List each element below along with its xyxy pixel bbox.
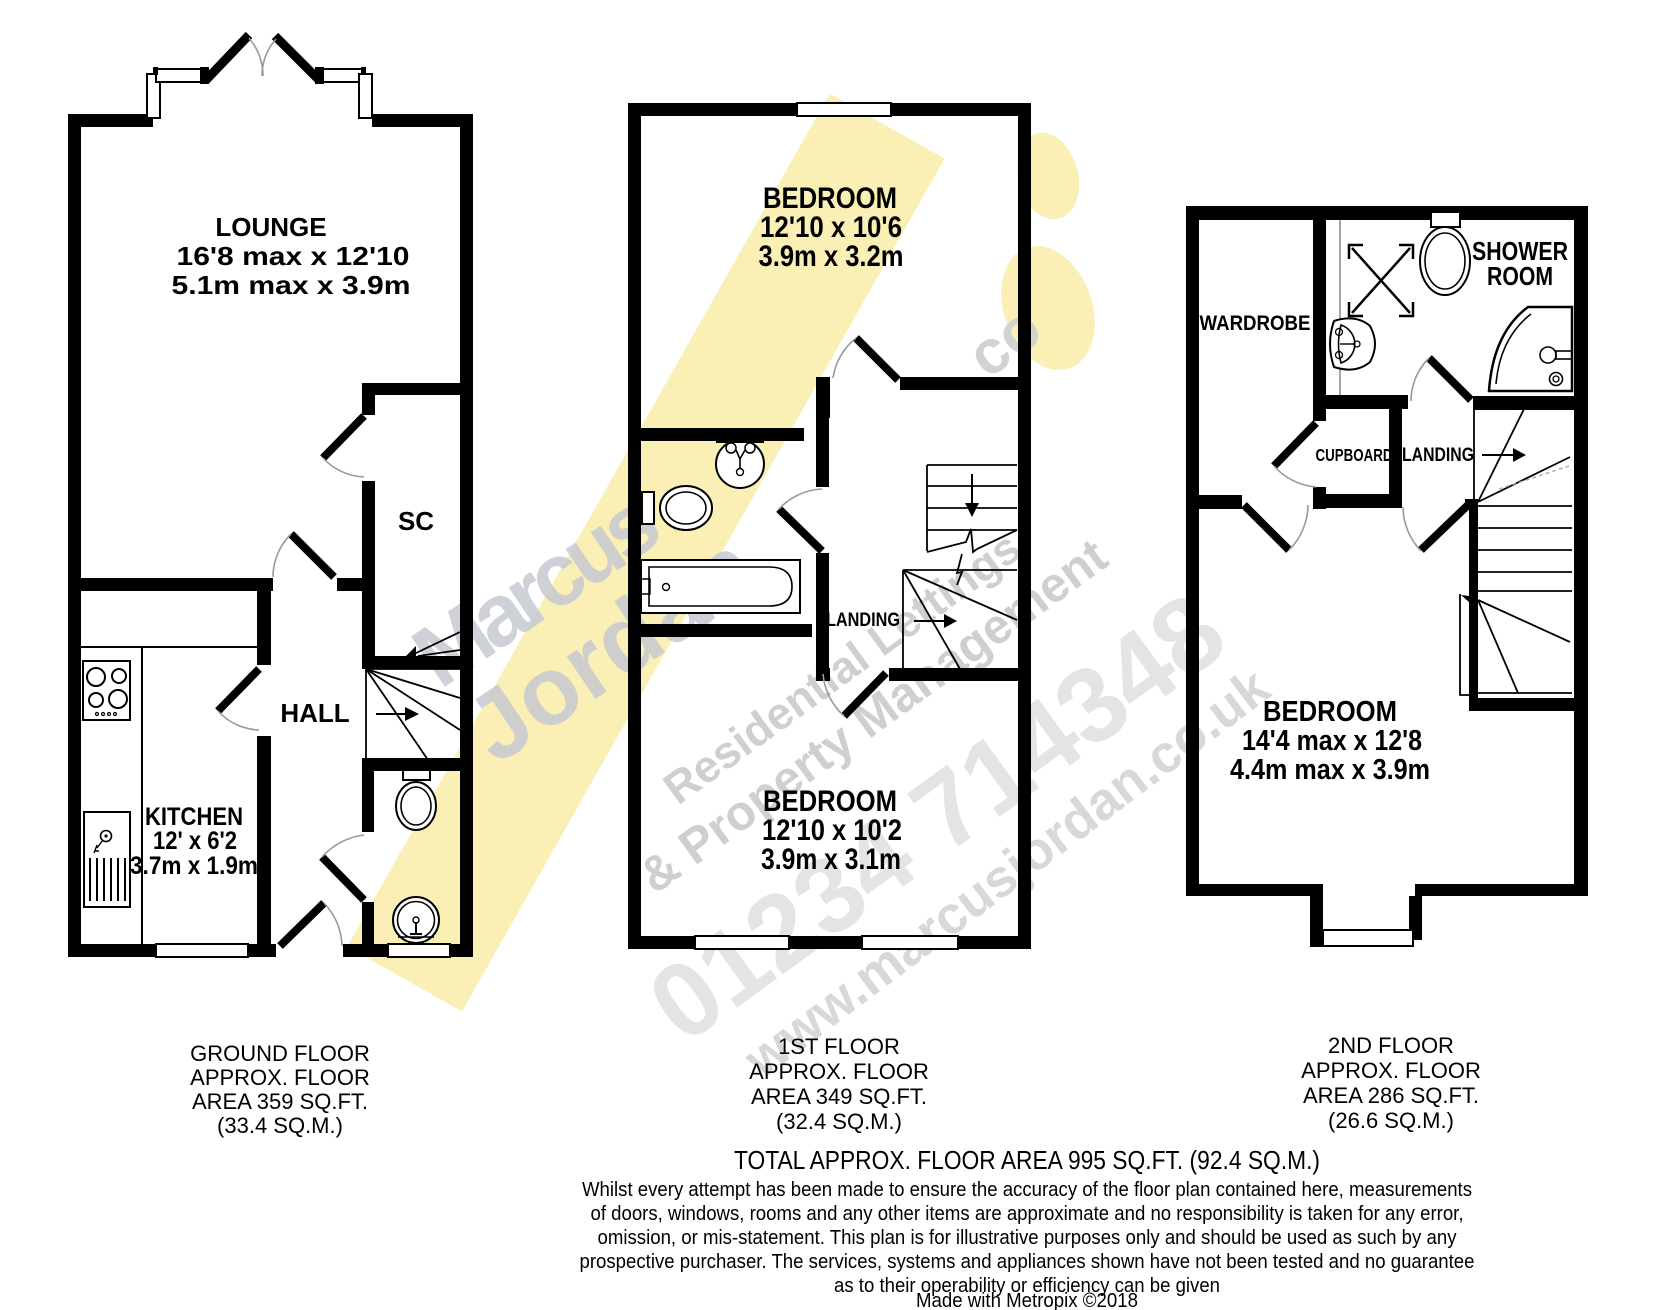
svg-text:APPROX. FLOOR: APPROX. FLOOR <box>749 1059 929 1084</box>
svg-text:AREA 286 SQ.FT.: AREA 286 SQ.FT. <box>1303 1083 1479 1108</box>
svg-text:HALL: HALL <box>280 698 349 728</box>
svg-text:16'8 max x 12'10: 16'8 max x 12'10 <box>177 241 410 271</box>
svg-text:(26.6 SQ.M.): (26.6 SQ.M.) <box>1328 1108 1454 1133</box>
svg-text:BEDROOM: BEDROOM <box>1263 696 1397 728</box>
svg-text:Made with Metropix ©2018: Made with Metropix ©2018 <box>916 1290 1138 1310</box>
svg-text:WARDROBE: WARDROBE <box>1200 312 1311 335</box>
svg-text:AREA 349 SQ.FT.: AREA 349 SQ.FT. <box>751 1084 927 1109</box>
svg-text:12' x 6'2: 12' x 6'2 <box>153 827 237 855</box>
svg-text:APPROX. FLOOR: APPROX. FLOOR <box>1301 1058 1481 1083</box>
svg-text:LANDING: LANDING <box>1402 445 1474 466</box>
svg-text:(32.4 SQ.M.): (32.4 SQ.M.) <box>776 1109 902 1134</box>
svg-text:3.9m x 3.1m: 3.9m x 3.1m <box>761 843 901 876</box>
svg-text:4.4m max x 3.9m: 4.4m max x 3.9m <box>1230 754 1430 786</box>
svg-text:SC: SC <box>398 506 434 536</box>
svg-text:(33.4 SQ.M.): (33.4 SQ.M.) <box>217 1113 343 1138</box>
svg-text:prospective purchaser. The ser: prospective purchaser. The services, sys… <box>580 1251 1475 1273</box>
svg-text:of doors, windows, rooms and a: of doors, windows, rooms and any other i… <box>591 1203 1464 1225</box>
svg-text:LANDING: LANDING <box>826 609 900 631</box>
svg-text:14'4 max x 12'8: 14'4 max x 12'8 <box>1242 725 1422 757</box>
svg-text:LOUNGE: LOUNGE <box>215 212 326 242</box>
svg-text:APPROX. FLOOR: APPROX. FLOOR <box>190 1065 370 1090</box>
svg-text:1ST FLOOR: 1ST FLOOR <box>778 1034 900 1059</box>
svg-text:2ND FLOOR: 2ND FLOOR <box>1328 1033 1454 1058</box>
svg-text:ROOM: ROOM <box>1487 261 1553 291</box>
svg-text:3.7m x 1.9m: 3.7m x 1.9m <box>130 852 258 880</box>
svg-text:CUPBOARD: CUPBOARD <box>1316 445 1393 465</box>
svg-text:5.1m max x 3.9m: 5.1m max x 3.9m <box>172 270 411 300</box>
svg-text:Whilst every attempt has been: Whilst every attempt has been made to en… <box>582 1179 1472 1201</box>
svg-text:AREA 359 SQ.FT.: AREA 359 SQ.FT. <box>192 1089 368 1114</box>
svg-text:omission, or mis-statement. Th: omission, or mis-statement. This plan is… <box>598 1227 1457 1249</box>
svg-text:3.9m x 3.2m: 3.9m x 3.2m <box>759 240 904 273</box>
svg-text:GROUND FLOOR: GROUND FLOOR <box>190 1041 370 1066</box>
svg-text:TOTAL APPROX. FLOOR AREA 995 S: TOTAL APPROX. FLOOR AREA 995 SQ.FT. (92.… <box>734 1145 1320 1175</box>
